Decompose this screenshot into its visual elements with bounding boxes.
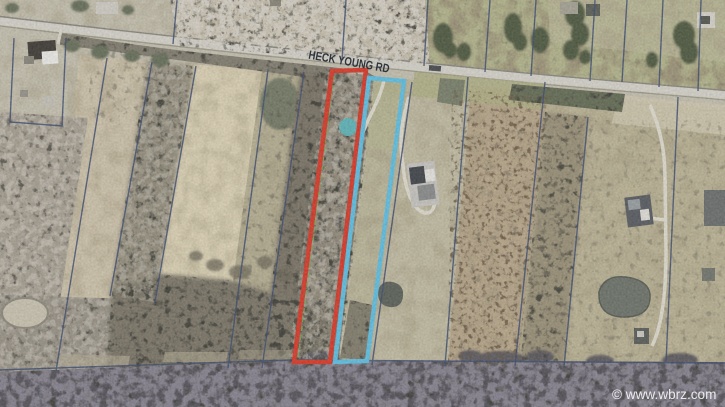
- svg-text:© www.wbrz.com: © www.wbrz.com: [612, 387, 716, 402]
